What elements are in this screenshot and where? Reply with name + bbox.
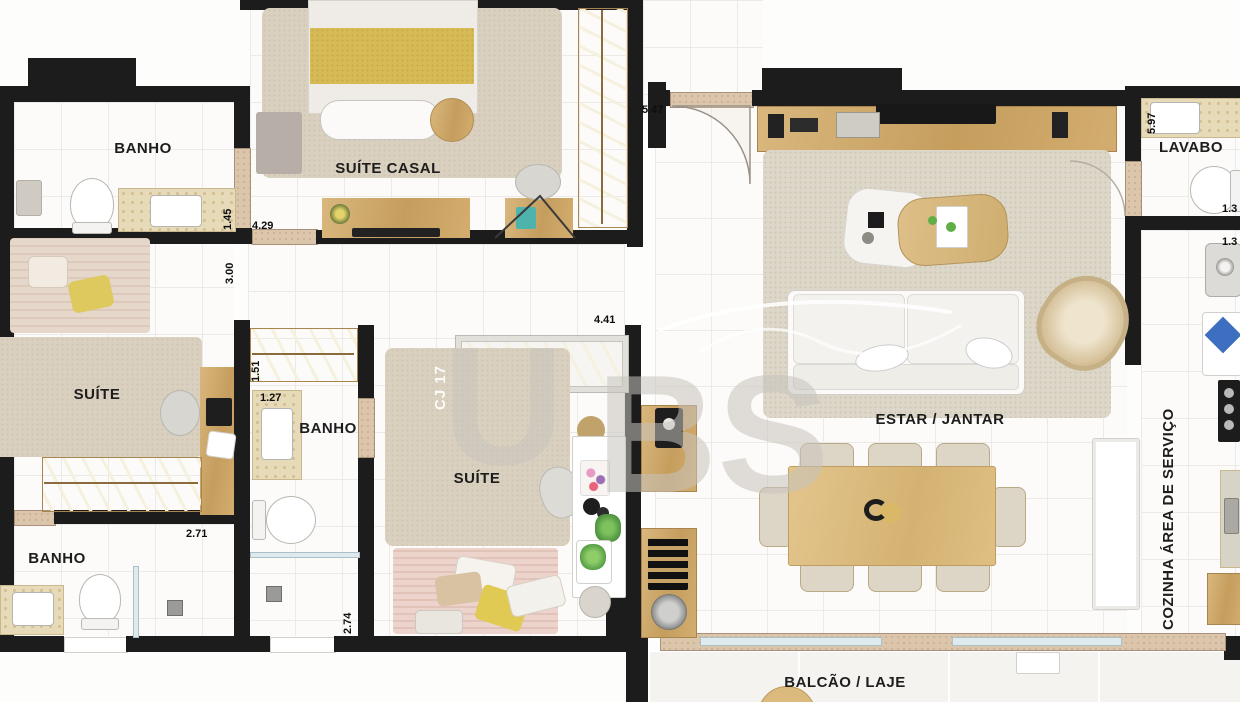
room-label-estar-jantar: ESTAR / JANTAR [876, 411, 1005, 428]
wall [0, 86, 248, 102]
door-sill [1125, 161, 1142, 218]
dim-entry: 5.47 [642, 104, 663, 116]
round-side-table [430, 98, 474, 142]
dim-living: 5.97 [1146, 94, 1158, 134]
dim-banho-tl-depth: 3.00 [224, 244, 236, 284]
wine-rack [648, 538, 688, 590]
wall [1224, 636, 1240, 660]
wall [1125, 230, 1141, 365]
burner [1224, 420, 1234, 430]
burner [1224, 404, 1234, 414]
dining-chair [994, 487, 1026, 547]
entry-door-sill [670, 92, 754, 108]
wardrobe-rail [44, 482, 198, 484]
pillow [28, 256, 68, 288]
dim-shower-middle: 2.74 [342, 600, 354, 634]
shower-glass [250, 552, 360, 558]
pillow [415, 610, 463, 634]
cabinet [1207, 573, 1240, 625]
plant [580, 544, 606, 570]
sink [261, 408, 293, 460]
toilet [79, 574, 121, 624]
dim-servico: 1.3 [1222, 236, 1237, 248]
decor [862, 232, 874, 244]
wall [126, 636, 270, 652]
dim-banho-middle: 1.27 [260, 392, 281, 404]
watermark-letter-u: U [443, 322, 564, 490]
room-label-banho-middle: BANHO [299, 420, 357, 437]
wall [1125, 86, 1141, 161]
window [270, 637, 336, 653]
wardrobe-casal [578, 8, 628, 228]
decor-plant [946, 222, 956, 232]
chair [515, 164, 561, 200]
room-label-cozinha-servico: COZINHA ÁREA DE SERVIÇO [1160, 335, 1177, 630]
wall [0, 636, 64, 652]
door-sill [234, 148, 251, 232]
closet-middle [250, 328, 358, 382]
decor-frame [836, 112, 880, 138]
toilet [266, 496, 316, 544]
toilet-tank [252, 500, 266, 540]
champagne-bucket [651, 594, 687, 630]
pillow-tan [434, 571, 484, 607]
side-table [16, 180, 42, 216]
room-label-banho-top-left: BANHO [114, 140, 172, 157]
tv [876, 104, 996, 124]
wall [334, 636, 608, 652]
room-label-suite-left: SUÍTE [74, 386, 121, 403]
toilet-tank [72, 222, 112, 234]
centerpiece [864, 499, 888, 521]
dim-suite-casal: 4.29 [252, 220, 273, 232]
burner [1224, 388, 1234, 398]
washer-door [1216, 258, 1234, 276]
basket [579, 586, 611, 618]
door-sill [358, 398, 375, 458]
sink [12, 592, 54, 626]
room-label-balcao-laje: BALCÃO / LAJE [784, 674, 906, 691]
shower-drain [167, 600, 183, 616]
shower-drain [266, 586, 282, 602]
floor-balcao [648, 650, 1240, 702]
shower-glass [133, 566, 139, 638]
watermark-letters-bs: BS [596, 350, 829, 518]
wall [234, 86, 250, 148]
plant [330, 204, 350, 224]
decor [790, 118, 818, 132]
window [64, 637, 128, 653]
wardrobe-rail [601, 10, 603, 224]
decor-books [768, 114, 784, 138]
closet-rail [252, 353, 354, 355]
service-sink [1224, 498, 1239, 534]
laptop [352, 228, 440, 237]
bed-blanket [310, 28, 474, 84]
wall [358, 325, 374, 636]
bed-bench [320, 100, 440, 140]
sink [150, 195, 202, 227]
toilet-tank [81, 618, 119, 630]
wall [627, 0, 643, 247]
wall [28, 58, 136, 88]
wardrobe-left [42, 457, 202, 512]
decor-plant [928, 216, 937, 225]
laptop [206, 398, 232, 426]
dim-suite-left: 2.71 [186, 528, 207, 540]
room-label-lavabo: LAVABO [1159, 139, 1223, 156]
floor-plan: BANHO SUÍTE CASAL LAVABO SUÍTE BANHO SUÍ… [0, 0, 1240, 702]
dim-suite-center: 4.41 [594, 314, 615, 326]
balcony-glass [700, 637, 882, 646]
wall [1125, 216, 1240, 230]
door-sill [14, 510, 56, 526]
bedside-bench [256, 112, 302, 174]
decor-books [1052, 112, 1068, 138]
dim-closet-middle: 1.51 [250, 346, 262, 382]
kitchen-island [1092, 438, 1140, 610]
dim-banho-tl-width: 1.45 [222, 196, 234, 230]
chair [160, 390, 200, 436]
decor-box [516, 207, 536, 229]
papers [205, 430, 236, 460]
wall [762, 68, 902, 92]
room-label-suite-casal: SUÍTE CASAL [335, 160, 441, 177]
room-label-banho-bottom-left: BANHO [28, 550, 86, 567]
decor [868, 212, 884, 228]
wall [234, 320, 250, 636]
dim-lavabo: 1.3 [1222, 203, 1237, 215]
balcony-glass [952, 637, 1122, 646]
watermark-creci: CJ 17 [432, 298, 449, 410]
balcony-bench [1016, 652, 1060, 674]
wall [626, 636, 648, 702]
